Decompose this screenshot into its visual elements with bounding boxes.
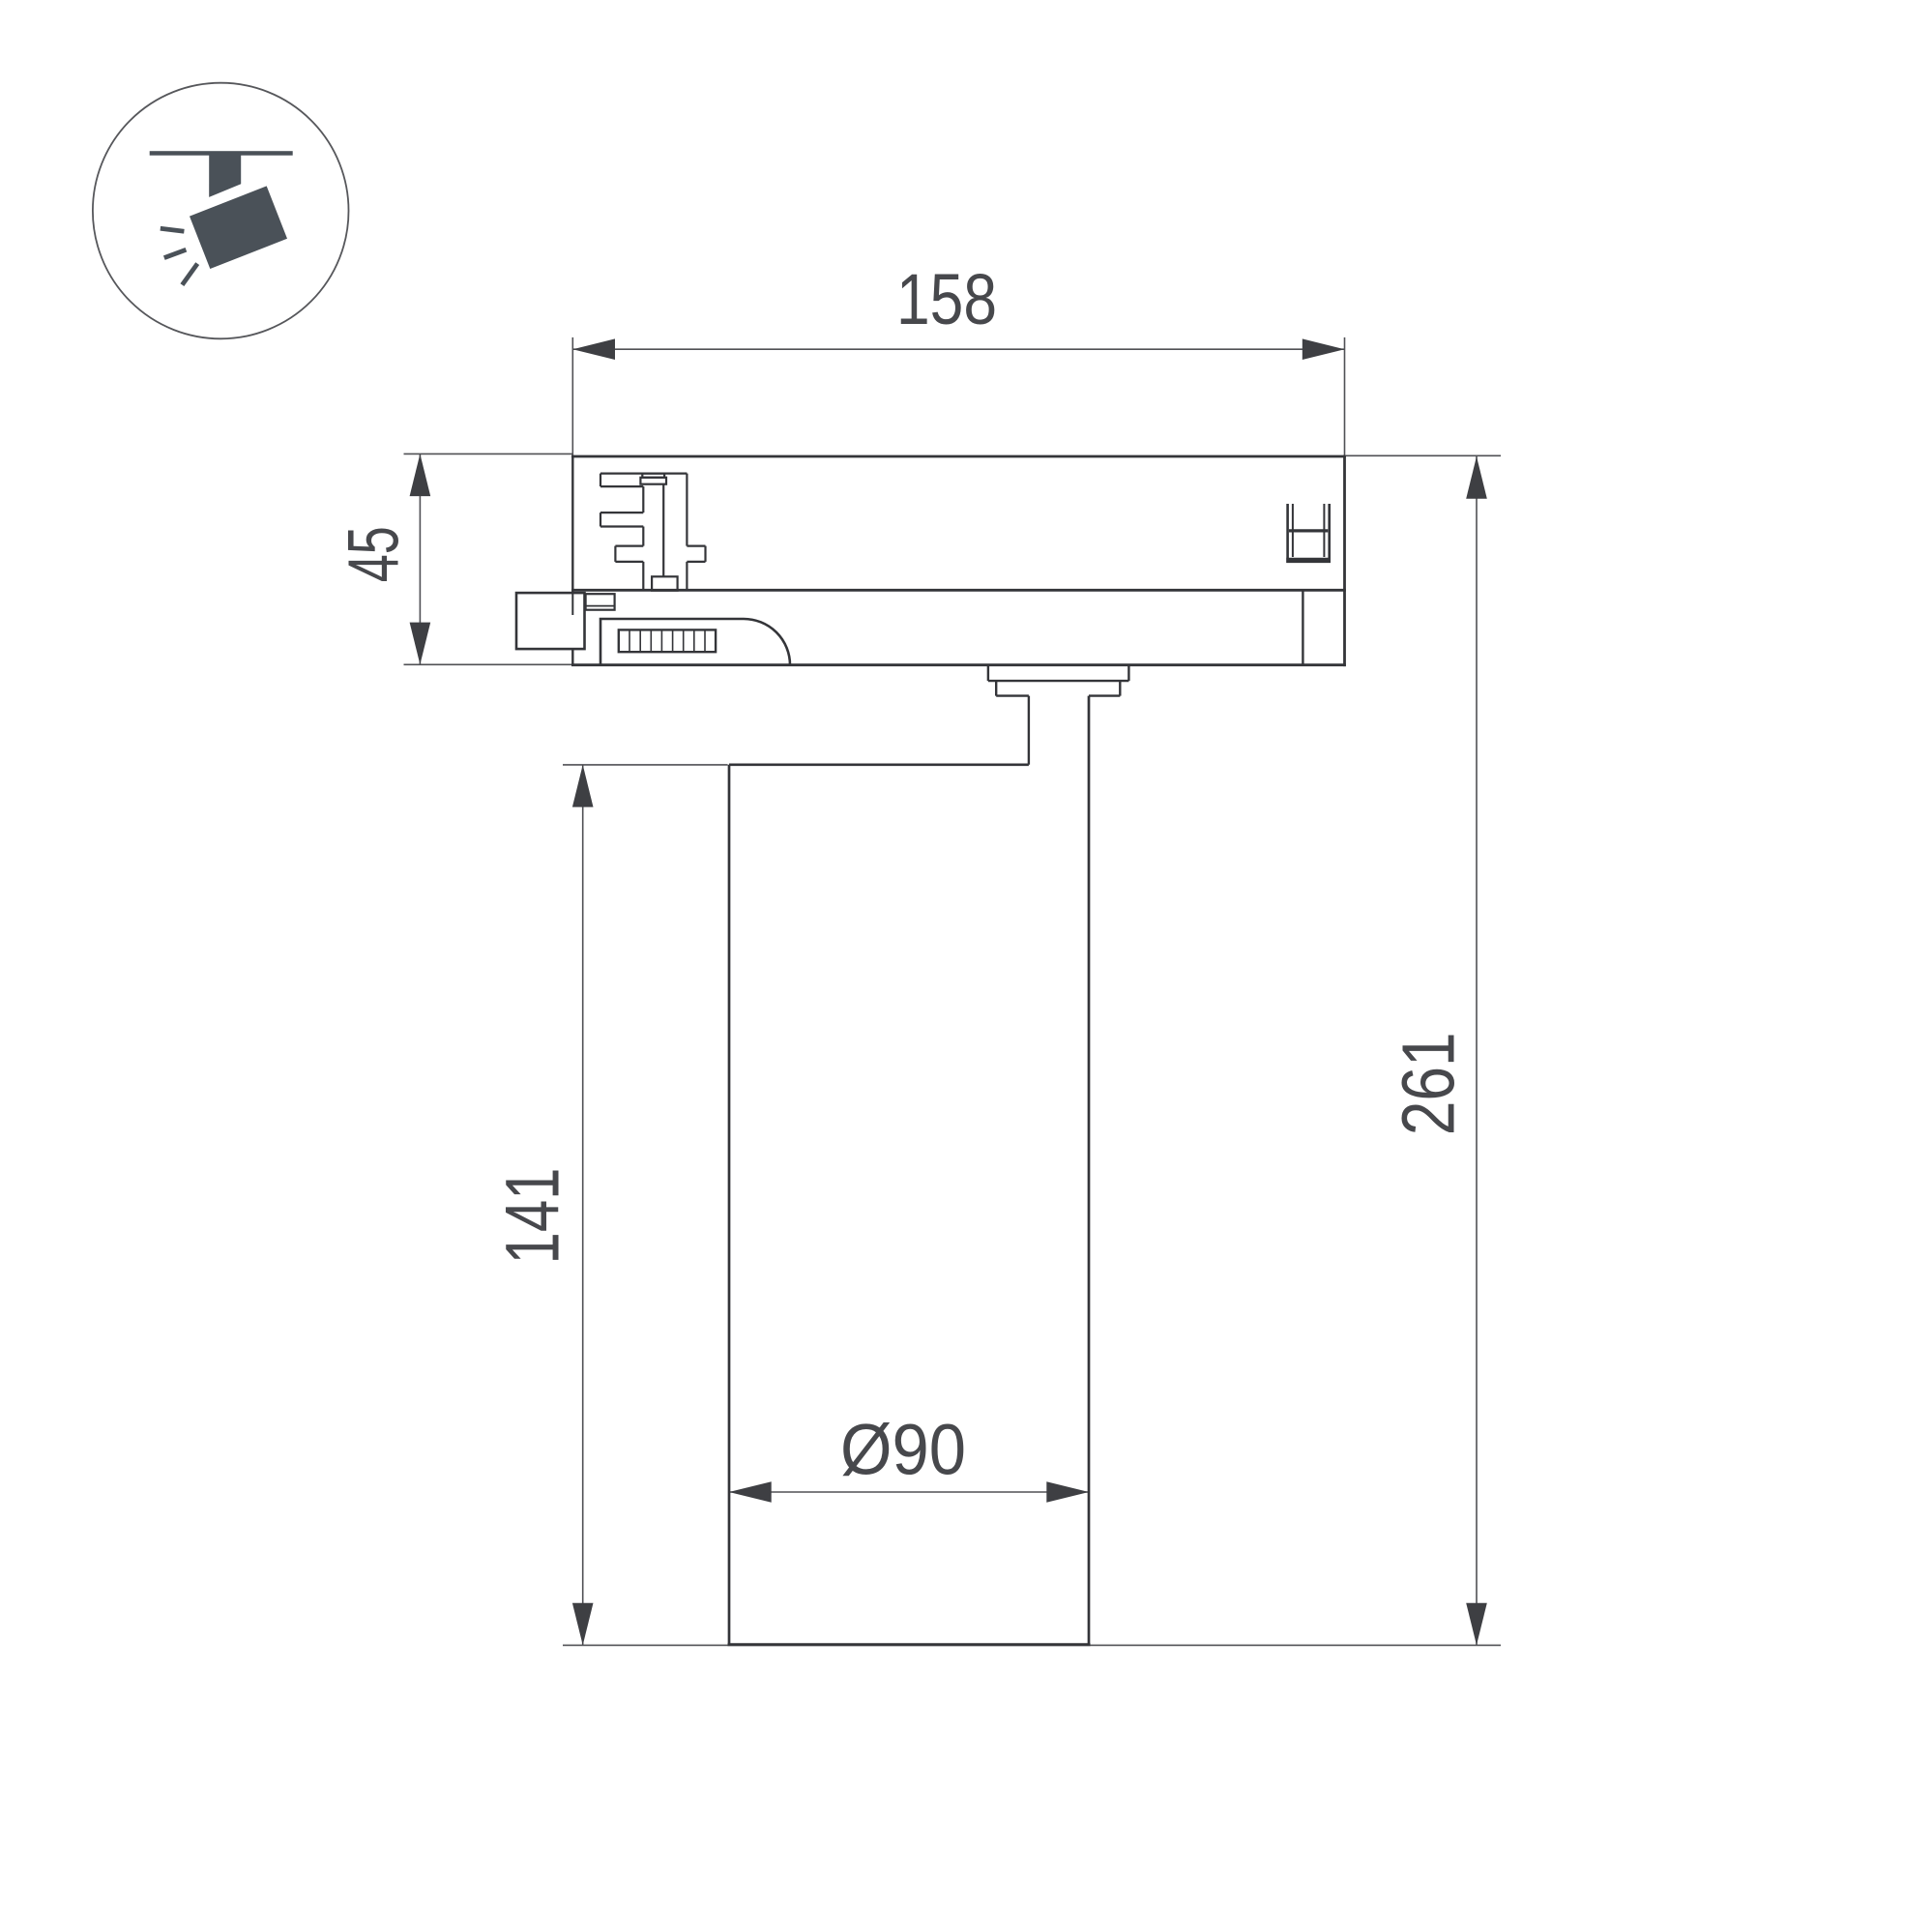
svg-text:45: 45 (334, 526, 414, 582)
svg-text:261: 261 (1388, 1032, 1471, 1135)
svg-text:158: 158 (896, 259, 997, 339)
svg-text:Ø90: Ø90 (840, 1410, 966, 1490)
svg-text:141: 141 (489, 1168, 575, 1265)
